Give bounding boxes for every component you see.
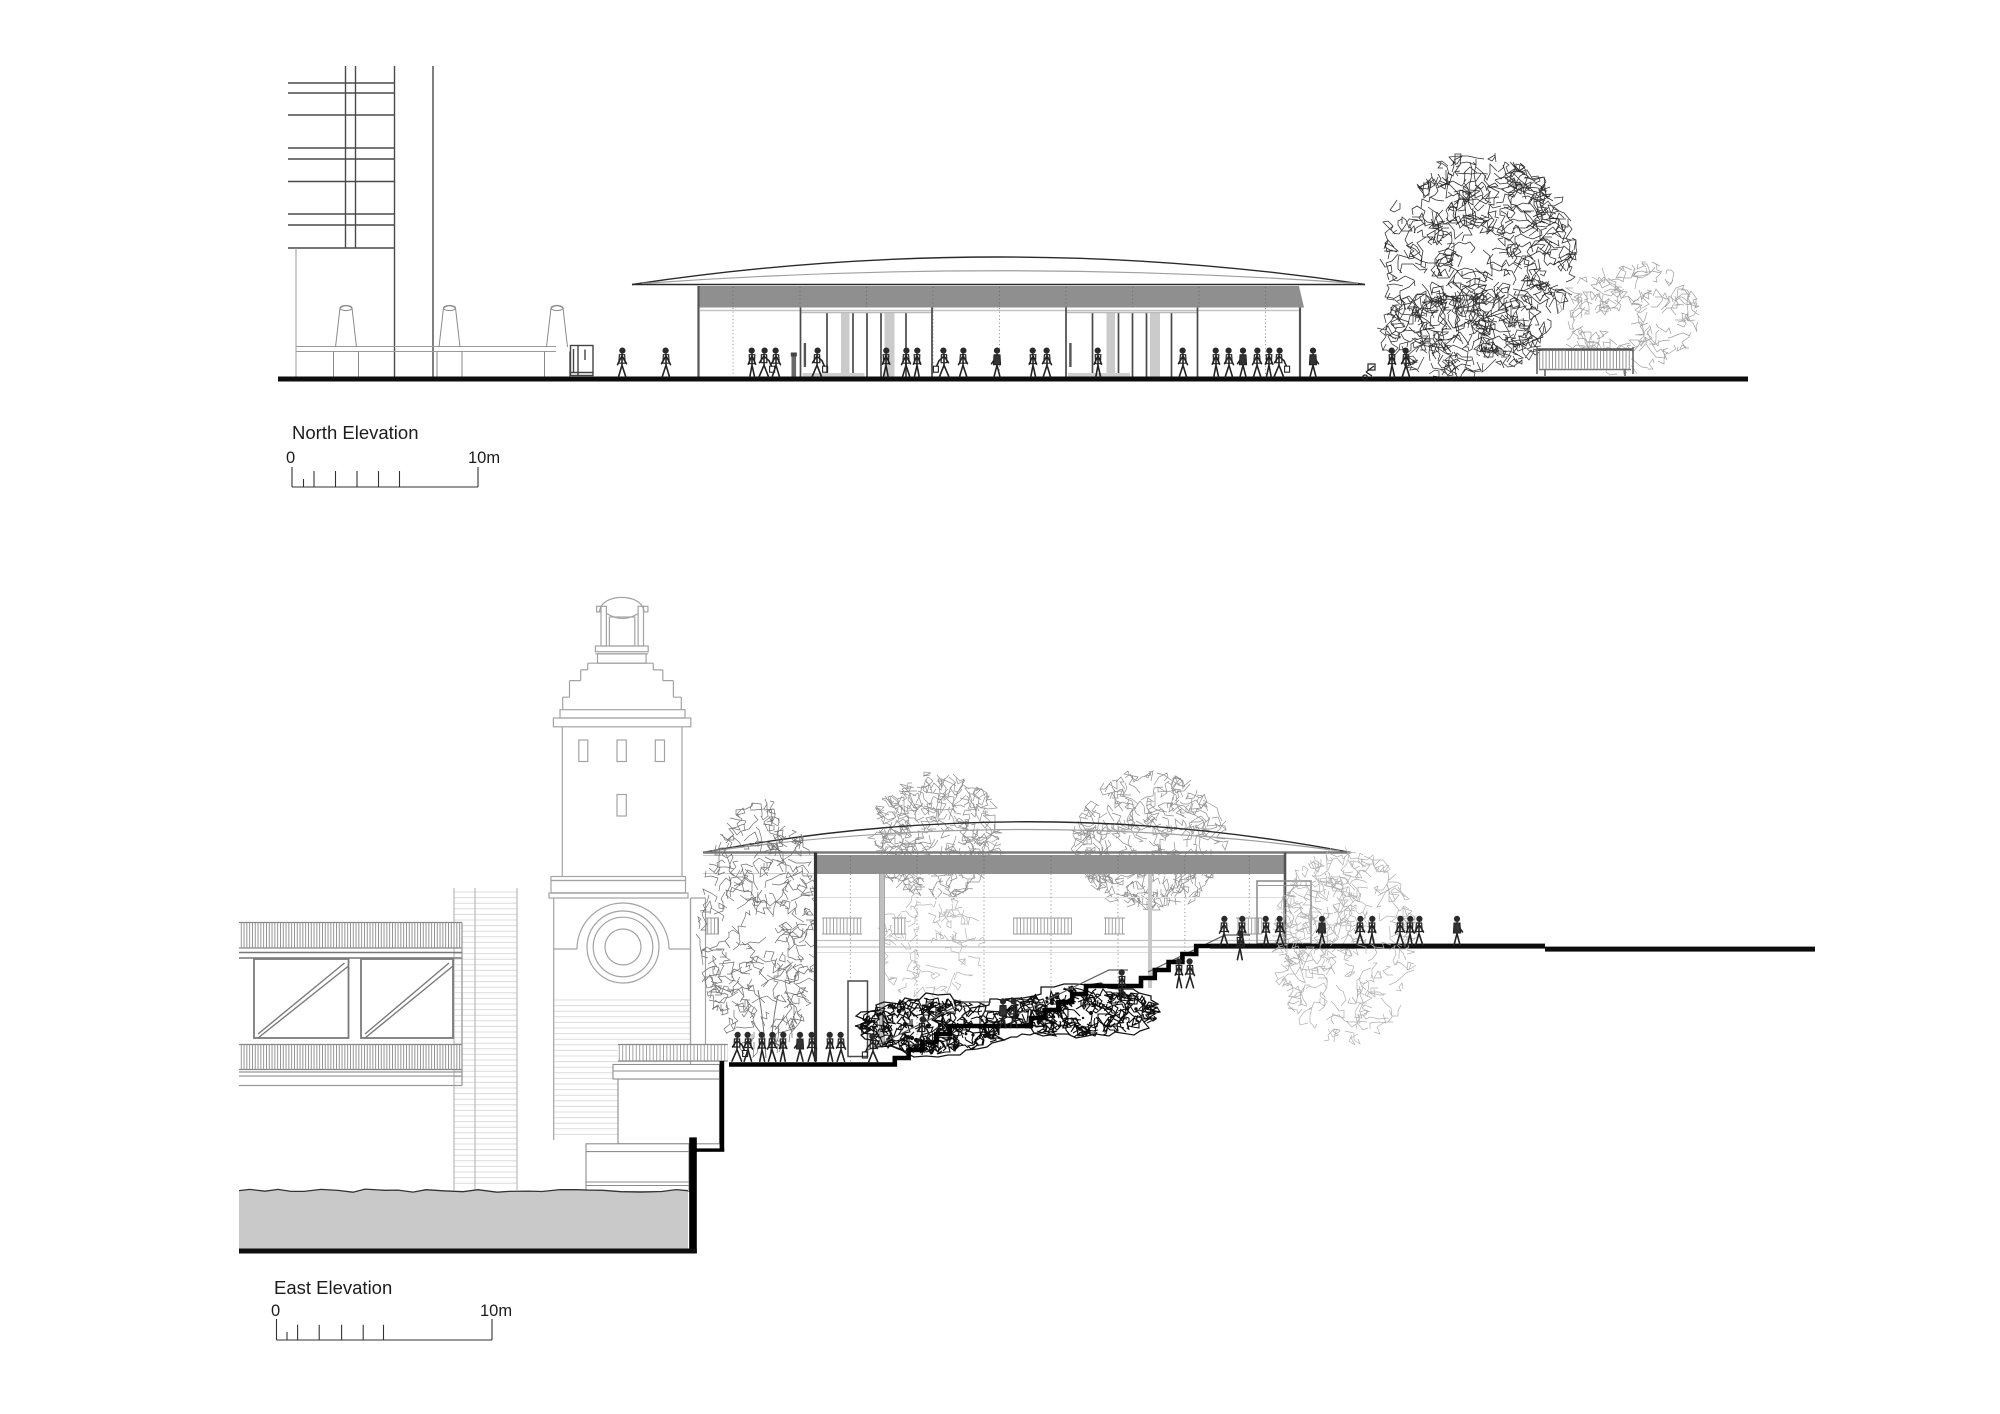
- svg-text:0: 0: [271, 1302, 280, 1320]
- svg-text:10m: 10m: [468, 449, 500, 467]
- svg-text:East Elevation: East Elevation: [274, 1277, 392, 1298]
- svg-text:North Elevation: North Elevation: [292, 422, 418, 443]
- svg-text:0: 0: [286, 449, 295, 467]
- svg-text:10m: 10m: [480, 1302, 512, 1320]
